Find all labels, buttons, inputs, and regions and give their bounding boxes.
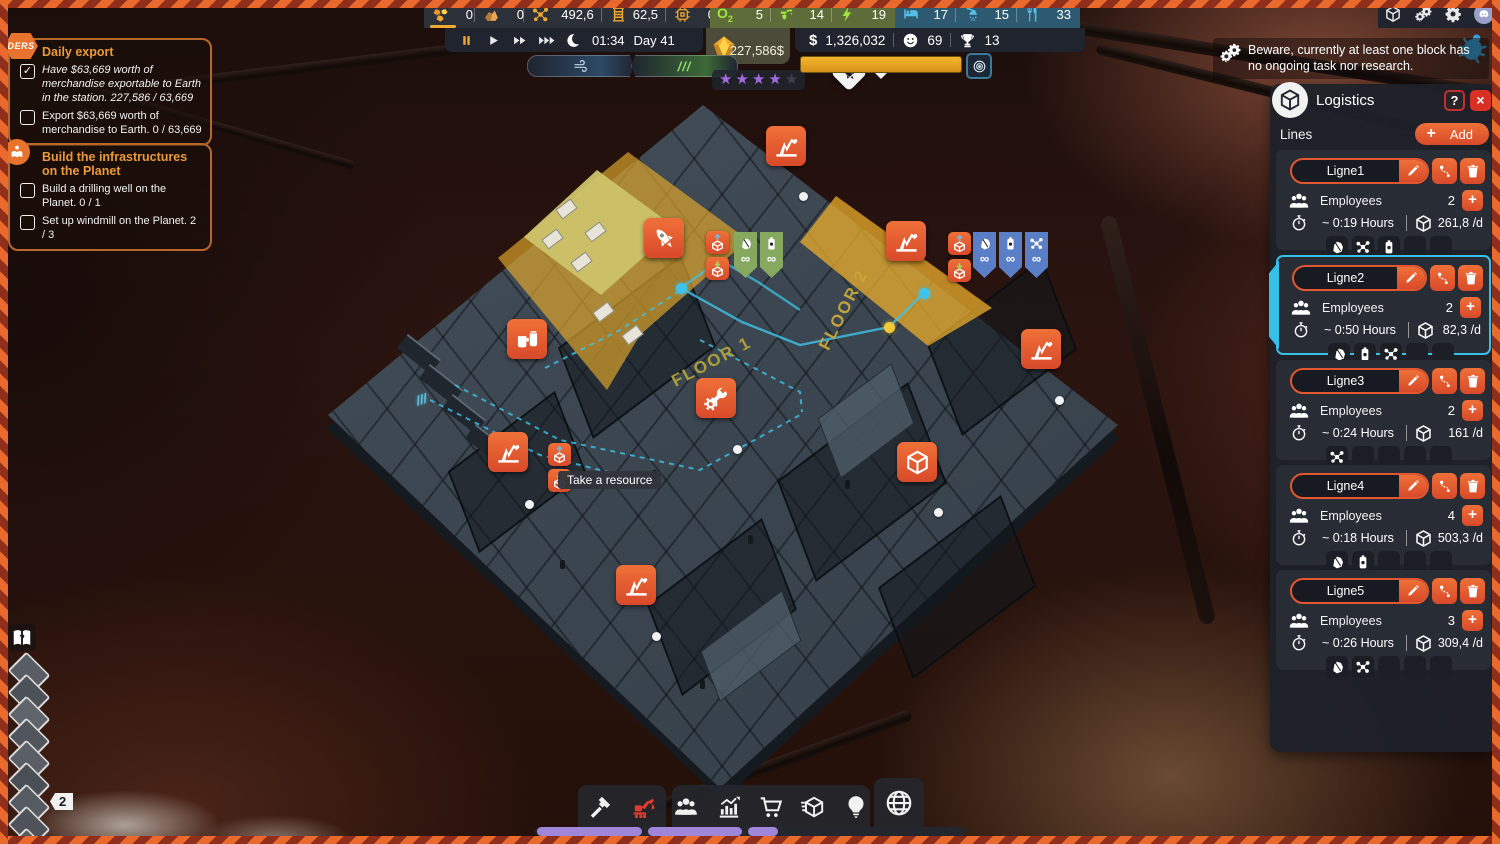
- delete-line-button[interactable]: [1458, 265, 1483, 291]
- svg-text:?: ?: [19, 632, 25, 642]
- money-value: 1,326,032: [825, 33, 885, 48]
- resource-value: 17: [930, 7, 948, 22]
- stats-chart-button[interactable]: [714, 792, 742, 822]
- task-text: Set up windmill on the Planet. 2 / 3: [42, 214, 202, 242]
- cargo-box-icon: [1414, 634, 1433, 653]
- line-name-field[interactable]: Ligne5: [1290, 578, 1429, 604]
- add-employee-button[interactable]: +: [1460, 297, 1481, 318]
- add-employee-button[interactable]: +: [1462, 610, 1483, 631]
- quest-title: Daily export: [42, 45, 202, 59]
- resource-value: 14: [806, 7, 824, 22]
- trophy-icon: [959, 32, 976, 49]
- help-button[interactable]: ?: [1444, 90, 1465, 111]
- canteen-badge[interactable]: [507, 319, 547, 359]
- logistics-title: Logistics: [1316, 92, 1374, 109]
- stopwatch-icon: [1292, 321, 1310, 339]
- excavator-button[interactable]: [629, 792, 659, 822]
- employees-label: Employees: [1320, 614, 1382, 628]
- hazard-border-bottom: [0, 836, 1500, 844]
- night-moon-icon: [565, 31, 583, 49]
- edit-line-name-button[interactable]: [1399, 160, 1427, 182]
- logistics-line-card[interactable]: Ligne5 Employees 3 + ~ 0:26 Hours 309,4 …: [1276, 570, 1491, 670]
- line-duration: ~ 0:18 Hours: [1322, 531, 1394, 545]
- line-throughput: 82,3 /d: [1443, 323, 1481, 337]
- quest-title: Build the infrastructures on the Planet: [42, 150, 202, 178]
- line-duration: ~ 0:19 Hours: [1322, 216, 1394, 230]
- station-rating: ★★★★★: [712, 70, 805, 90]
- storage-box-badge[interactable]: [897, 442, 937, 482]
- infinity-label: ∞: [980, 252, 989, 266]
- infinity-label: ∞: [767, 252, 776, 266]
- logistics-panel: Logistics ? × Lines + Add Ligne1 Employe…: [1270, 84, 1497, 752]
- empty-slot[interactable]: [1378, 656, 1400, 678]
- add-employee-button[interactable]: +: [1462, 400, 1483, 421]
- worker: [560, 560, 565, 569]
- pumpjack-badge[interactable]: [766, 126, 806, 166]
- shopping-cart-button[interactable]: [757, 792, 785, 822]
- resource-value: 0: [506, 7, 524, 22]
- progress-segment: [537, 827, 642, 836]
- progress-segment: [648, 827, 742, 836]
- cargo-box-icon: [1414, 529, 1433, 548]
- route-node-dot: [919, 288, 930, 299]
- pumpjack-badge[interactable]: [1021, 329, 1061, 369]
- divider: [1408, 322, 1410, 338]
- happiness-icon: [902, 32, 919, 49]
- employees-label: Employees: [1320, 509, 1382, 523]
- close-button[interactable]: ×: [1470, 90, 1491, 111]
- power-bolt-icon: [839, 6, 856, 23]
- delete-line-button[interactable]: [1460, 578, 1485, 604]
- employees-count: 4: [1448, 508, 1455, 523]
- employees-label: Employees: [1320, 404, 1382, 418]
- stopwatch-icon: [1290, 529, 1308, 547]
- edit-line-name-button[interactable]: [1399, 580, 1427, 602]
- warning-notification[interactable]: Beware, currently at least one block has…: [1213, 38, 1489, 79]
- plus-icon: +: [1427, 124, 1436, 144]
- logistics-line-card[interactable]: Ligne1 Employees 2 + ~ 0:19 Hours 261,8 …: [1276, 150, 1491, 250]
- hazard-border-right: [1492, 0, 1500, 844]
- status-dot: [652, 632, 661, 641]
- task-checkbox[interactable]: [20, 215, 35, 230]
- task-text: Build a drilling well on the Planet. 0 /…: [42, 182, 202, 210]
- line-resource-slots: [1326, 656, 1452, 678]
- molecule-slot[interactable]: [1352, 656, 1374, 678]
- quest-card: DERS Daily export ✓ Have $63,669 worth o…: [8, 38, 212, 146]
- time-controls: 01:34 Day 41: [445, 28, 703, 52]
- line-route-button[interactable]: [1432, 473, 1457, 499]
- infinity-label: ∞: [741, 252, 750, 266]
- worker: [748, 535, 753, 544]
- hazard-border-top: [0, 0, 1500, 8]
- star-icon: ★: [785, 72, 798, 88]
- objective-target-button[interactable]: [966, 53, 992, 79]
- box-import-button[interactable]: [706, 257, 729, 280]
- quest-task: Build a drilling well on the Planet. 0 /…: [20, 182, 202, 210]
- globe-button[interactable]: [884, 788, 914, 818]
- status-dot: [525, 500, 534, 509]
- divider: [1406, 530, 1408, 546]
- cargo-box-icon: [1414, 214, 1433, 233]
- employees-icon: [1288, 505, 1310, 527]
- fastest-button[interactable]: [538, 31, 556, 49]
- line-route-button[interactable]: [1430, 265, 1455, 291]
- line-duration: ~ 0:26 Hours: [1322, 636, 1394, 650]
- add-line-button[interactable]: + Add: [1415, 123, 1489, 145]
- task-gears-icon: [1219, 42, 1241, 64]
- planet-toolbar-group: [874, 778, 924, 828]
- stopwatch-icon: [1290, 214, 1308, 232]
- worker: [700, 680, 705, 689]
- rocket-badge[interactable]: [644, 218, 684, 258]
- quest-card: Build the infrastructures on the Planet …: [8, 143, 212, 251]
- milestone-progress: [535, 827, 947, 836]
- line-name-field[interactable]: Ligne3: [1290, 368, 1429, 394]
- tutorial-help-button[interactable]: ?: [8, 624, 36, 651]
- logistics-header: Logistics ? ×: [1270, 84, 1497, 120]
- resource-value: 5: [745, 7, 763, 22]
- line-duration: ~ 0:24 Hours: [1322, 426, 1394, 440]
- pumpjack-badge[interactable]: [616, 565, 656, 605]
- employees-count: 3: [1448, 613, 1455, 628]
- line-route-button[interactable]: [1432, 368, 1457, 394]
- logistics-line-card[interactable]: Ligne3 Employees 2 + ~ 0:24 Hours 161 /d: [1276, 360, 1491, 460]
- day-counter: Day 41: [634, 33, 675, 48]
- quest-task: ✓ Have $63,669 worth of merchandise expo…: [20, 63, 202, 105]
- delete-line-button[interactable]: [1460, 368, 1485, 394]
- pumpjack-badge[interactable]: [886, 221, 926, 261]
- resource-value: 19: [868, 7, 886, 22]
- resource-value: 0: [455, 7, 473, 22]
- line-throughput: 161 /d: [1448, 426, 1483, 440]
- employees-count: 2: [1446, 300, 1453, 315]
- line-name: Ligne4: [1292, 479, 1399, 493]
- divider: [1406, 425, 1408, 441]
- selected-line-tab: [1269, 261, 1279, 349]
- selected-resource-underline: [430, 25, 456, 28]
- pumpjack-badge[interactable]: [488, 432, 528, 472]
- build-toolbar-group: [578, 785, 666, 828]
- task-text: Export $63,669 worth of merchandise to E…: [42, 109, 202, 137]
- divider: [1406, 635, 1408, 651]
- line-name: Ligne3: [1292, 374, 1399, 388]
- star-icon: ★: [752, 72, 765, 88]
- status-dot: [934, 508, 943, 517]
- line-name-field[interactable]: Ligne4: [1290, 473, 1429, 499]
- infinity-label: ∞: [1032, 252, 1041, 266]
- divider: [1406, 215, 1408, 231]
- resource-value: 62,5: [633, 7, 658, 22]
- line-throughput: 309,4 /d: [1438, 636, 1483, 650]
- star-icon: ★: [768, 72, 781, 88]
- delete-line-button[interactable]: [1460, 473, 1485, 499]
- employees-icon: [1290, 297, 1312, 319]
- logistics-line-card[interactable]: Ligne2 Employees 2 + ~ 0:50 Hours 82,3 /…: [1276, 255, 1491, 355]
- logistics-icon: [1272, 82, 1308, 118]
- wrench-gear-badge[interactable]: [696, 378, 736, 418]
- logistics-lines-list: Ligne1 Employees 2 + ~ 0:19 Hours 261,8 …: [1276, 150, 1491, 675]
- employees-label: Employees: [1320, 194, 1382, 208]
- resource-value: 492,6: [561, 7, 594, 22]
- pause-button[interactable]: [457, 31, 475, 49]
- empty-slot[interactable]: [1430, 656, 1452, 678]
- stopwatch-icon: [1290, 634, 1308, 652]
- status-dot: [799, 192, 808, 201]
- status-dot: [1055, 396, 1064, 405]
- employees-icon: [1288, 400, 1310, 422]
- route-node-dot: [884, 322, 895, 333]
- employees-icon: [1288, 610, 1310, 632]
- lines-label: Lines: [1280, 127, 1312, 142]
- line-route-button[interactable]: [1432, 158, 1457, 184]
- line-throughput: 261,8 /d: [1438, 216, 1483, 230]
- quest-task: Set up windmill on the Planet. 2 / 3: [20, 214, 202, 242]
- route-node-dot: [676, 283, 687, 294]
- box-export-button[interactable]: [948, 232, 971, 255]
- star-icon: ★: [719, 72, 732, 88]
- idea-bulb-button[interactable]: [842, 792, 870, 822]
- cargo-box-icon: [1414, 424, 1433, 443]
- task-checkbox[interactable]: [20, 110, 35, 125]
- objective-progress-bar: [800, 56, 962, 73]
- resource-value: 33: [1053, 7, 1071, 22]
- people-button[interactable]: [672, 792, 700, 822]
- task-checkbox[interactable]: ✓: [20, 64, 35, 79]
- employees-label: Employees: [1322, 301, 1384, 315]
- stopwatch-icon: [1290, 424, 1308, 442]
- fast-forward-button[interactable]: [511, 31, 529, 49]
- money-bar: $ 1,326,032 69 13: [795, 28, 1085, 52]
- employees-count: 2: [1448, 193, 1455, 208]
- line-duration: ~ 0:50 Hours: [1324, 323, 1396, 337]
- floor-selector: [6, 668, 52, 844]
- line-route-button[interactable]: [1432, 578, 1457, 604]
- hazard-border-left: [0, 0, 8, 844]
- empty-slot[interactable]: [1404, 656, 1426, 678]
- line-name-field[interactable]: Ligne1: [1290, 158, 1429, 184]
- box-export-button[interactable]: [548, 443, 571, 466]
- add-employee-button[interactable]: +: [1462, 190, 1483, 211]
- add-employee-button[interactable]: +: [1462, 505, 1483, 526]
- water-tap-icon: [778, 6, 795, 23]
- star-icon: ★: [735, 72, 748, 88]
- dollar-icon: $: [809, 32, 817, 49]
- task-checkbox[interactable]: [20, 183, 35, 198]
- worker: [845, 480, 850, 489]
- task-text: Have $63,669 worth of merchandise export…: [42, 63, 202, 105]
- line-name-field[interactable]: Ligne2: [1292, 265, 1427, 291]
- employees-icon: [1288, 190, 1310, 212]
- cursor-tooltip: Take a resource: [558, 471, 661, 489]
- logistics-box-button[interactable]: [799, 792, 827, 822]
- clock-time: 01:34: [592, 33, 625, 48]
- delete-line-button[interactable]: [1460, 158, 1485, 184]
- status-dot: [733, 445, 742, 454]
- environment-indicators: ///: [527, 55, 738, 77]
- trophy-value: 13: [984, 33, 999, 48]
- play-button[interactable]: [484, 31, 502, 49]
- quest-task: Export $63,669 worth of merchandise to E…: [20, 109, 202, 137]
- happiness-value: 69: [927, 33, 942, 48]
- line-name: Ligne2: [1294, 271, 1397, 285]
- edit-line-name-button[interactable]: [1399, 475, 1427, 497]
- warning-text: Beware, currently at least one block has…: [1248, 42, 1483, 75]
- line-throughput: 503,3 /d: [1438, 531, 1483, 545]
- logistics-line-card[interactable]: Ligne4 Employees 4 + ~ 0:18 Hours 503,3 …: [1276, 465, 1491, 565]
- progress-segment: [748, 827, 778, 836]
- line-name: Ligne1: [1292, 164, 1399, 178]
- game-screen: FLOOR 1 FLOOR 2 /// ∞∞∞∞∞ Take a resourc…: [0, 0, 1500, 844]
- cargo-box-icon: [1416, 321, 1435, 340]
- hammer-button[interactable]: [585, 792, 615, 822]
- ore-slot[interactable]: [1326, 656, 1348, 678]
- edit-line-name-button[interactable]: [1399, 370, 1427, 392]
- box-import-button[interactable]: [948, 259, 971, 282]
- box-export-button[interactable]: [706, 231, 729, 254]
- infinity-label: ∞: [1006, 252, 1015, 266]
- line-name: Ligne5: [1292, 584, 1399, 598]
- employees-count: 2: [1448, 403, 1455, 418]
- wind-indicator[interactable]: [527, 55, 634, 77]
- edit-line-name-button[interactable]: [1397, 267, 1425, 289]
- resource-value: 15: [991, 7, 1009, 22]
- manage-toolbar-group: [672, 785, 870, 828]
